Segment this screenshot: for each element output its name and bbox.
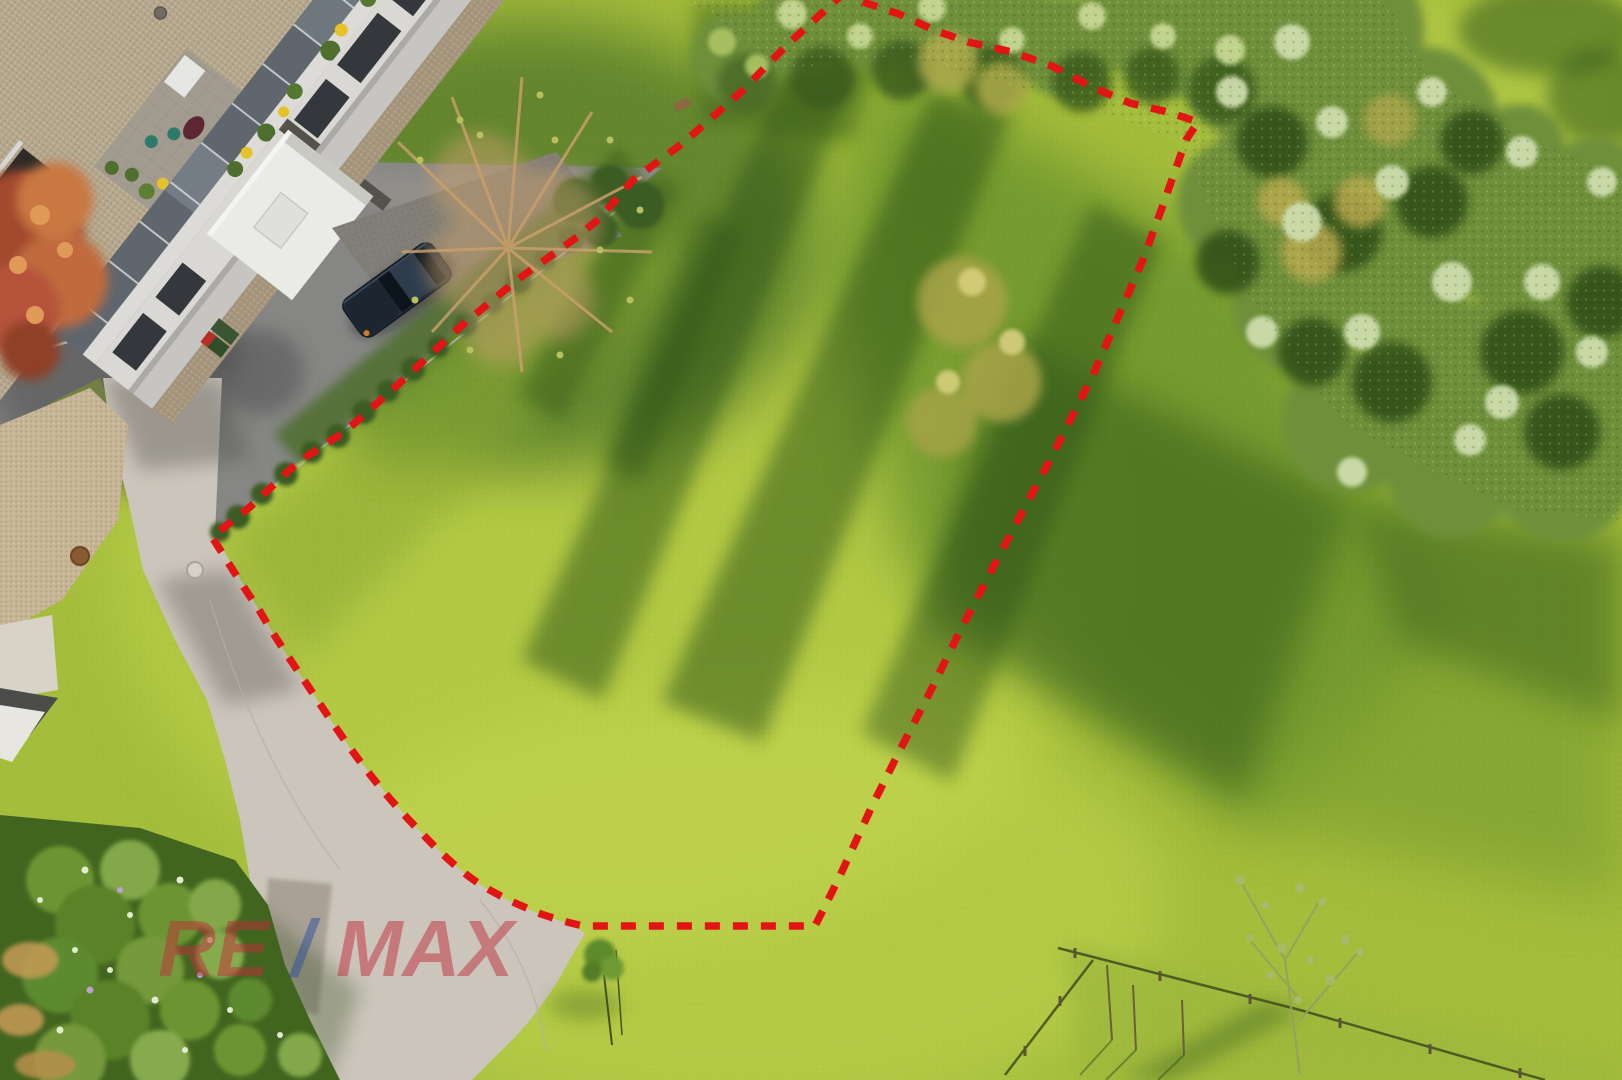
young-tree-shadow <box>549 990 621 1020</box>
manhole-cover <box>187 562 203 578</box>
remax-watermark: RE / MAX <box>158 904 518 993</box>
aerial-photo: RE / MAX <box>0 0 1622 1080</box>
remax-re: RE <box>158 904 272 993</box>
aerial-photo-canvas: RE / MAX <box>0 0 1622 1080</box>
stone-path <box>0 615 58 700</box>
remax-watermark-text: RE / MAX <box>158 904 518 993</box>
remax-slash: / <box>288 904 321 993</box>
remax-max: MAX <box>336 904 518 993</box>
manhole-cover <box>71 547 89 565</box>
